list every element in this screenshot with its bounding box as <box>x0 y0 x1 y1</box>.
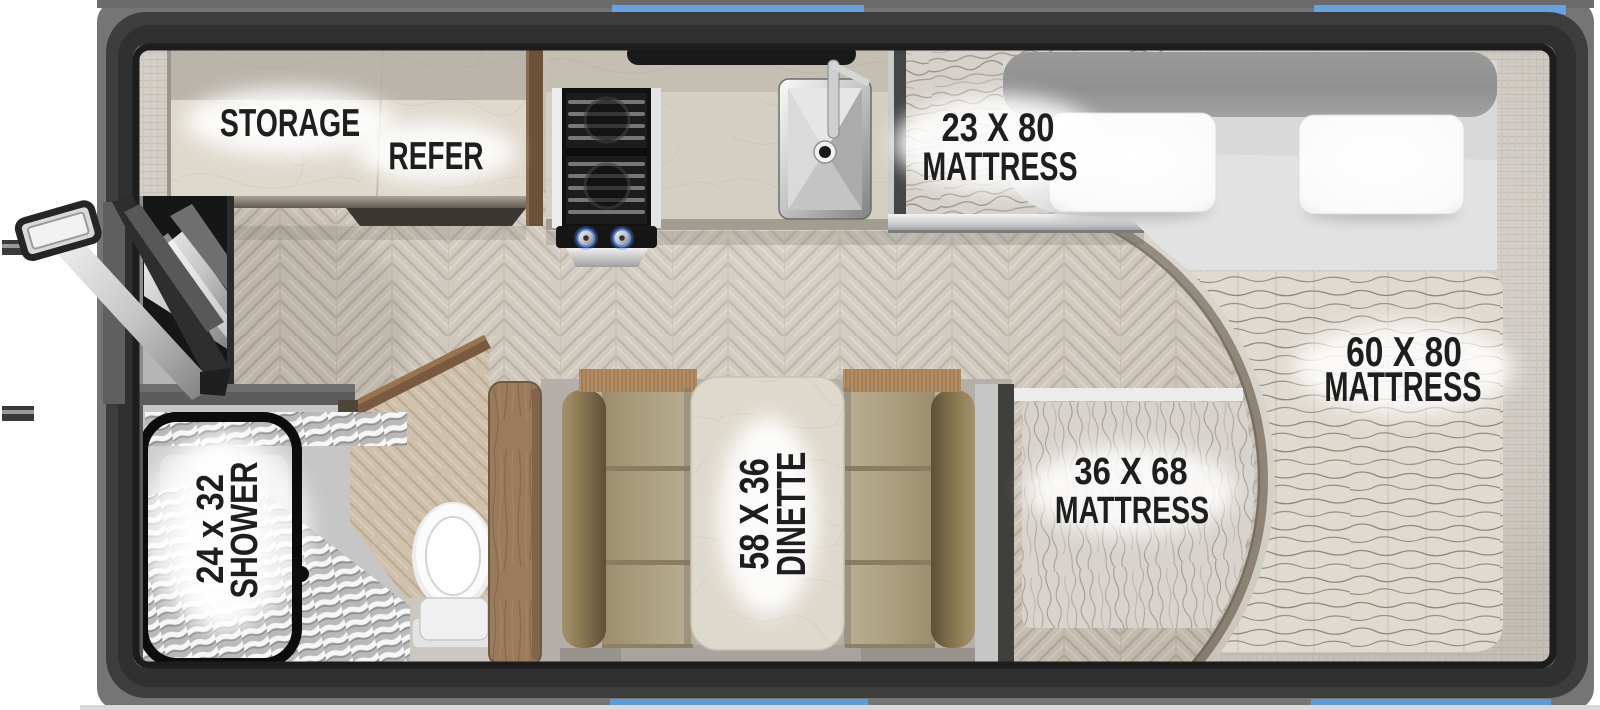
svg-text:36 X 68: 36 X 68 <box>1074 450 1187 493</box>
svg-text:MATTRESS: MATTRESS <box>1055 490 1209 532</box>
svg-text:DINETTE: DINETTE <box>768 452 814 577</box>
svg-text:MATTRESS: MATTRESS <box>1324 363 1481 411</box>
svg-text:REFER: REFER <box>388 135 483 179</box>
svg-text:23 X 80: 23 X 80 <box>941 105 1054 150</box>
svg-text:SHOWER: SHOWER <box>224 461 266 598</box>
svg-text:STORAGE: STORAGE <box>220 102 360 145</box>
svg-text:MATTRESS: MATTRESS <box>922 145 1077 189</box>
